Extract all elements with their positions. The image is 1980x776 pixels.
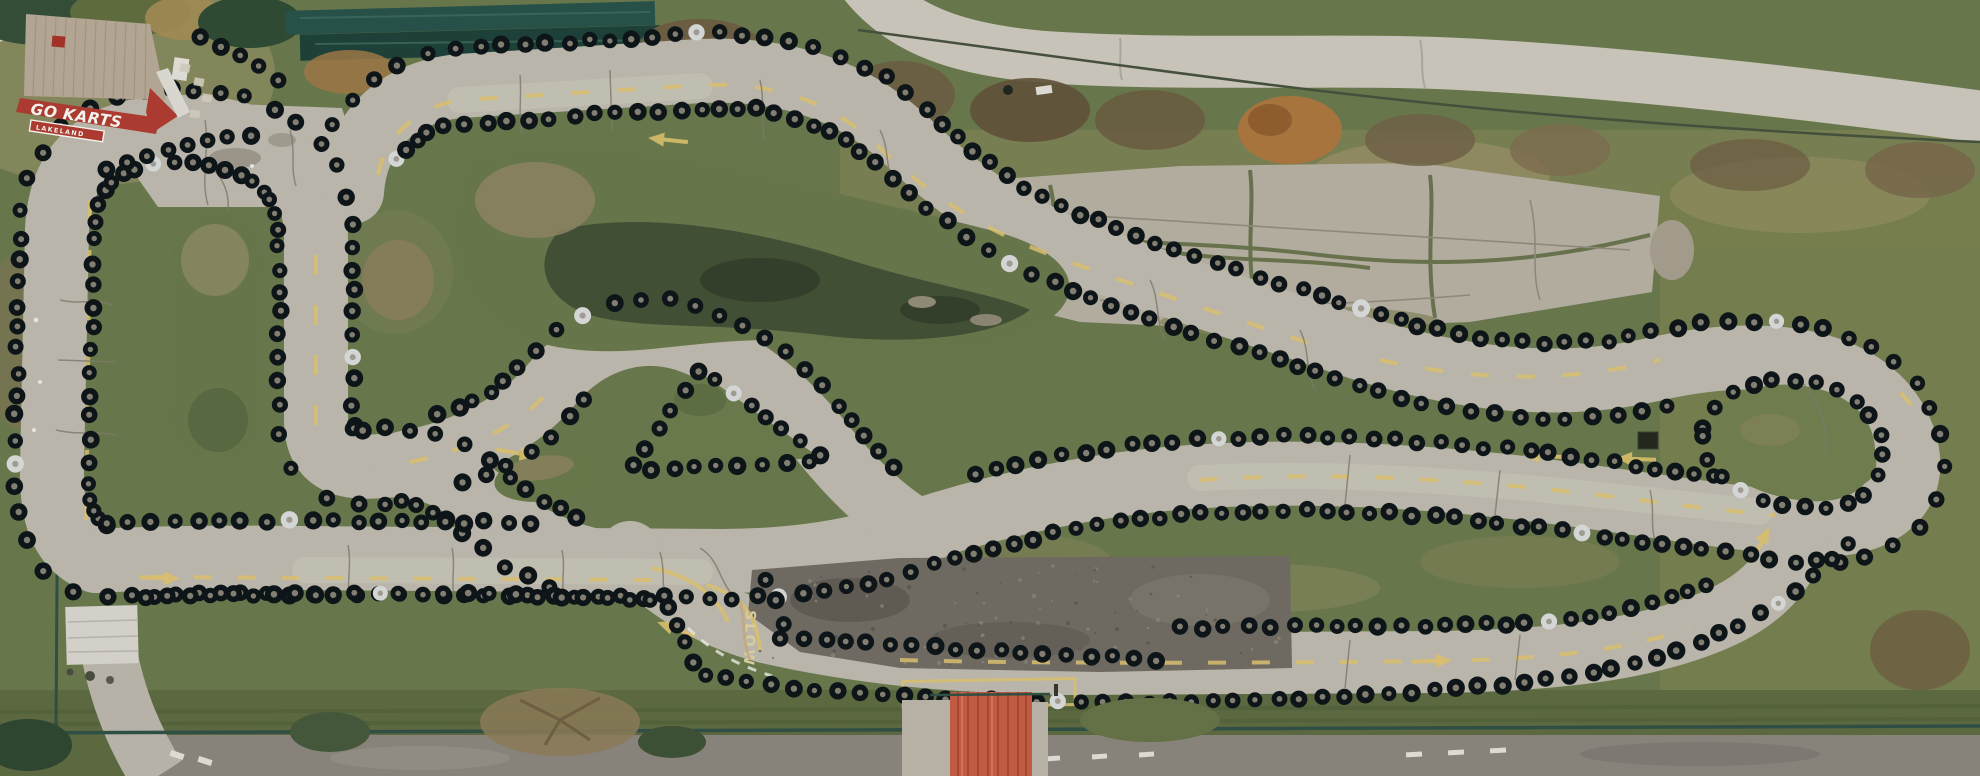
shed-fence	[930, 694, 1050, 695]
left-island-dark	[188, 388, 248, 452]
bare-shrub	[1510, 124, 1610, 176]
left-island-dry	[181, 224, 249, 296]
bare-shrub	[1865, 142, 1975, 198]
rubble	[1650, 220, 1694, 280]
debris	[85, 671, 95, 681]
bare-shrub	[1365, 114, 1475, 166]
debris	[67, 669, 74, 676]
aerial-photo-go-kart-track: SLOW GO KARTS	[0, 0, 1980, 776]
dirt-patch	[475, 162, 595, 238]
bare-shrub	[970, 78, 1090, 142]
pole	[1054, 684, 1058, 696]
concrete-pad-left	[902, 700, 950, 776]
bare-shrub-right	[1870, 610, 1970, 690]
infield-hut	[1638, 432, 1658, 449]
debris	[106, 676, 114, 684]
bush-bottom	[290, 712, 370, 752]
shed-roof	[65, 605, 138, 665]
orange-tree-core	[1248, 104, 1292, 136]
equipment	[1003, 85, 1013, 95]
roof-vent	[51, 35, 65, 47]
road-patch	[1580, 742, 1820, 766]
concrete-pad-right	[1032, 702, 1048, 776]
bare-shrub	[1095, 90, 1205, 150]
dirt-wedge	[362, 240, 434, 320]
mud-flat	[908, 296, 936, 308]
mud-flat	[970, 314, 1002, 326]
road-patch	[330, 746, 510, 770]
bush-bottom	[638, 726, 706, 758]
marsh-dark-spot	[700, 258, 820, 302]
hairpin-island-dry	[1740, 414, 1800, 446]
dry-patch	[1420, 536, 1620, 588]
grass-tuft	[1080, 698, 1220, 742]
bare-shrub	[1690, 139, 1810, 191]
